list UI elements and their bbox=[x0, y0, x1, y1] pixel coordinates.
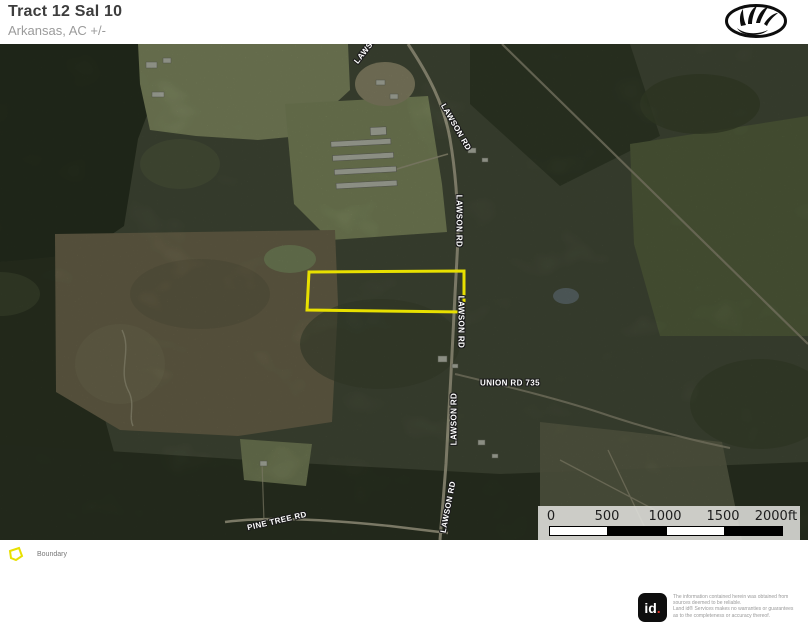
aerial-map-canvas[interactable] bbox=[0, 44, 808, 540]
bear-paw-logo-icon bbox=[724, 3, 788, 39]
legend: Boundary bbox=[8, 546, 67, 562]
scale-bar-segment bbox=[608, 527, 665, 535]
page-subtitle: Arkansas, AC +/- bbox=[8, 23, 106, 38]
landid-logo-icon: id. bbox=[638, 593, 667, 622]
disclaimer-line: as to the completeness or accuracy there… bbox=[673, 613, 795, 619]
scale-bar-segment bbox=[725, 527, 782, 535]
scale-tick-0: 0 bbox=[547, 509, 555, 524]
road-label-lawson-3: LAWSON RD bbox=[455, 195, 464, 248]
road-label-lawson-5: LAWSON RD bbox=[450, 393, 459, 446]
scale-tick-500: 500 bbox=[595, 509, 620, 524]
scale-tick-1000: 1000 bbox=[648, 509, 681, 524]
page-title: Tract 12 Sal 10 bbox=[8, 3, 122, 21]
road-label-lawson-4: LAWSON RD bbox=[457, 296, 466, 349]
disclaimer-text: The information contained herein was obt… bbox=[673, 593, 795, 622]
disclaimer-line: Land id® Services makes no warranties or… bbox=[673, 606, 795, 612]
boundary-legend-icon bbox=[8, 546, 24, 562]
legend-item-label: Boundary bbox=[37, 551, 67, 558]
road-label-union: UNION RD 735 bbox=[480, 379, 540, 388]
scale-tick-2000: 2000ft bbox=[755, 509, 798, 524]
scale-bar-segment bbox=[666, 527, 725, 535]
map-export-page: LAWSON RD LAWSON RD LAWSON RD LAWSON RD … bbox=[0, 0, 808, 624]
scale-bar: 0 500 1000 1500 2000ft bbox=[538, 506, 800, 540]
attribution: id. The information contained herein was… bbox=[638, 593, 795, 622]
aerial-imagery bbox=[0, 44, 808, 540]
footer: Boundary id. The information contained h… bbox=[0, 540, 808, 624]
scale-bar-segment bbox=[550, 527, 608, 535]
landid-logo-dot: . bbox=[657, 600, 661, 616]
scale-bar-segments bbox=[549, 526, 783, 536]
scale-tick-1500: 1500 bbox=[706, 509, 739, 524]
header: Tract 12 Sal 10 Arkansas, AC +/- bbox=[0, 0, 808, 44]
landid-logo-text: id bbox=[644, 600, 656, 616]
